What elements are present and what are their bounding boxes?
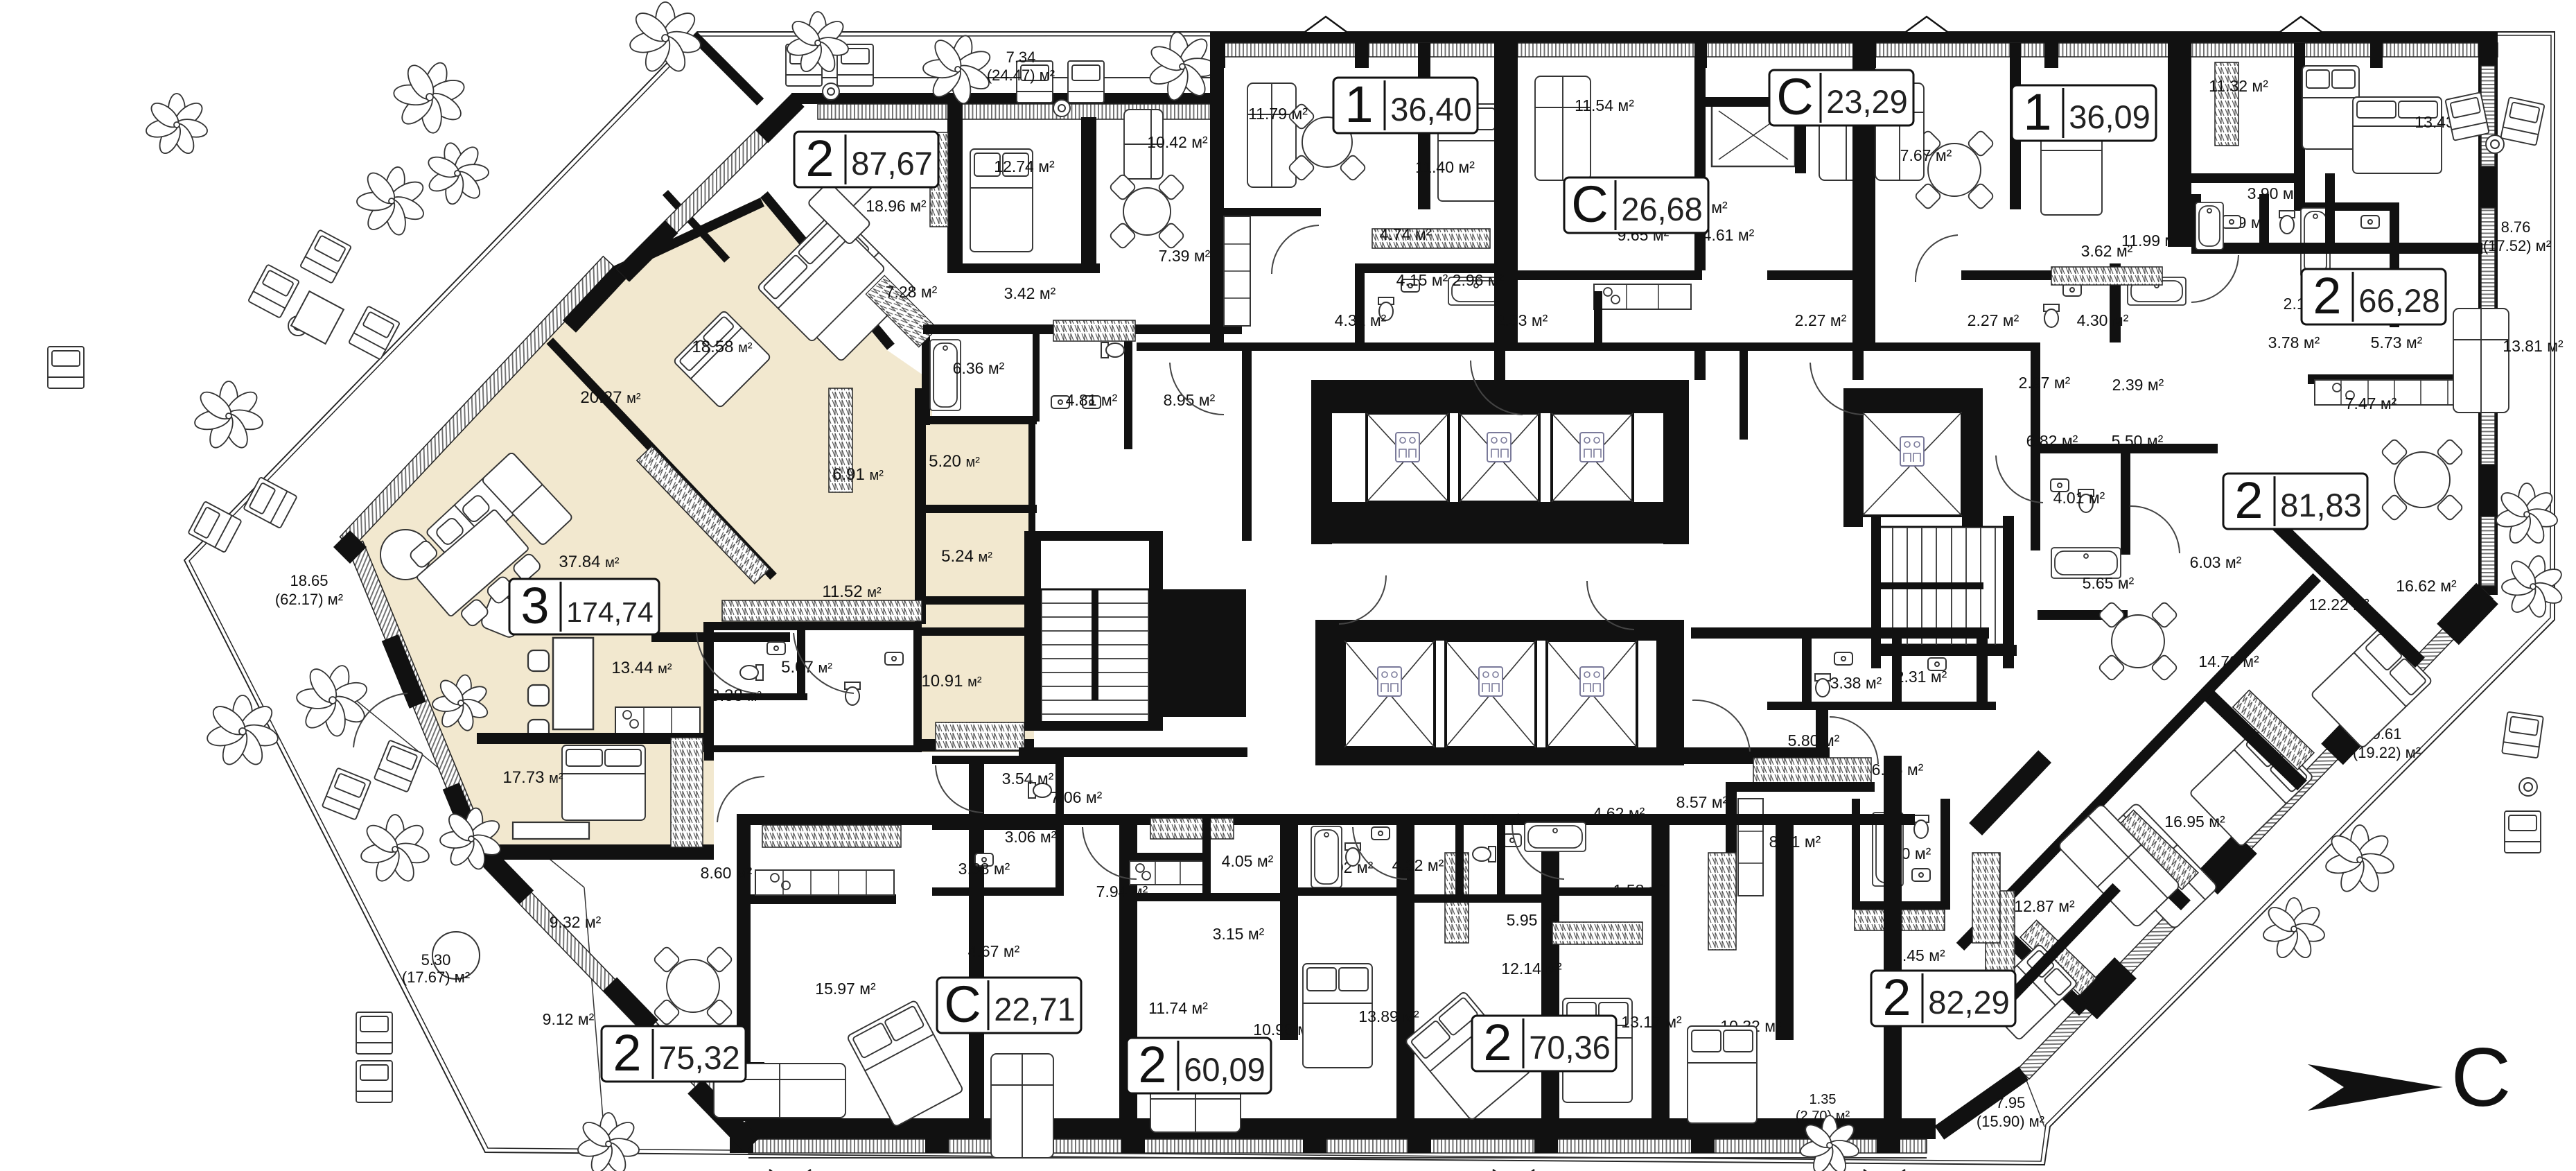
svg-text:4.74 м²: 4.74 м²	[1380, 225, 1432, 243]
svg-text:3.42 м²: 3.42 м²	[1004, 284, 1056, 302]
svg-text:7.06 м²: 7.06 м²	[1051, 788, 1103, 806]
svg-text:3.78 м²: 3.78 м²	[2268, 333, 2320, 352]
svg-text:13.81 м²: 13.81 м²	[2503, 337, 2564, 355]
svg-text:60,09: 60,09	[1184, 1051, 1265, 1088]
svg-text:3: 3	[520, 577, 549, 634]
svg-text:11.79 м²: 11.79 м²	[1248, 105, 1308, 123]
svg-text:11.32 м²: 11.32 м²	[2209, 77, 2268, 95]
svg-text:2: 2	[1882, 969, 1911, 1026]
svg-text:2.27 м²: 2.27 м²	[1795, 311, 1847, 329]
svg-text:6.03 м²: 6.03 м²	[2190, 553, 2242, 571]
svg-text:4.81 м²: 4.81 м²	[1066, 391, 1118, 409]
svg-text:1: 1	[2023, 83, 2051, 141]
svg-text:5.73 м²: 5.73 м²	[2371, 333, 2423, 352]
svg-text:12.87 м²: 12.87 м²	[2014, 897, 2075, 915]
svg-text:2: 2	[613, 1024, 641, 1082]
svg-text:5.24 м²: 5.24 м²	[941, 547, 992, 566]
svg-text:C: C	[1571, 175, 1608, 233]
svg-text:2: 2	[1138, 1036, 1166, 1093]
svg-text:13.17 м²: 13.17 м²	[1621, 1013, 1682, 1031]
svg-text:66,28: 66,28	[2358, 282, 2440, 319]
svg-text:3.38 м²: 3.38 м²	[710, 686, 762, 705]
svg-text:3.15 м²: 3.15 м²	[1213, 925, 1265, 943]
svg-text:(17.52) м²: (17.52) м²	[2483, 237, 2551, 254]
svg-text:8.57 м²: 8.57 м²	[1676, 793, 1728, 811]
svg-text:7.34: 7.34	[1006, 49, 1036, 66]
svg-text:7.39 м²: 7.39 м²	[1159, 247, 1211, 265]
svg-text:10.42 м²: 10.42 м²	[1147, 133, 1208, 151]
svg-text:82,29: 82,29	[1928, 984, 2010, 1021]
svg-text:(62.17) м²: (62.17) м²	[275, 591, 343, 608]
svg-text:3.06 м²: 3.06 м²	[1005, 828, 1057, 846]
svg-text:(2.70) м²: (2.70) м²	[1796, 1109, 1850, 1124]
svg-text:C: C	[1776, 68, 1813, 125]
svg-text:12.74 м²: 12.74 м²	[994, 157, 1055, 175]
svg-text:6.82 м²: 6.82 м²	[2026, 432, 2078, 450]
svg-text:4.01 м²: 4.01 м²	[2053, 489, 2105, 507]
svg-text:37.84 м²: 37.84 м²	[559, 553, 619, 571]
svg-text:5.50 м²: 5.50 м²	[2112, 432, 2164, 450]
svg-text:11.52 м²: 11.52 м²	[822, 582, 882, 601]
svg-text:3.38 м²: 3.38 м²	[1830, 674, 1882, 692]
svg-text:(15.90) м²: (15.90) м²	[1977, 1113, 2044, 1130]
svg-text:5.95 м²: 5.95 м²	[1507, 911, 1559, 929]
svg-text:70,36: 70,36	[1529, 1029, 1611, 1066]
svg-text:1.35: 1.35	[1810, 1092, 1837, 1107]
svg-text:15.97 м²: 15.97 м²	[815, 980, 876, 998]
svg-text:87,67: 87,67	[851, 145, 933, 182]
svg-text:5.20 м²: 5.20 м²	[929, 452, 980, 471]
svg-text:75,32: 75,32	[658, 1039, 740, 1076]
svg-text:9.32 м²: 9.32 м²	[550, 913, 602, 931]
svg-text:4.32 м²: 4.32 м²	[1335, 311, 1387, 329]
svg-text:7.47 м²: 7.47 м²	[2345, 394, 2397, 413]
svg-text:36,40: 36,40	[1390, 91, 1472, 128]
svg-text:3.38 м²: 3.38 м²	[958, 860, 1010, 878]
svg-text:18.58 м²: 18.58 м²	[692, 338, 752, 356]
svg-text:4.32 м²: 4.32 м²	[1392, 856, 1444, 874]
svg-text:4.67 м²: 4.67 м²	[968, 942, 1020, 960]
svg-text:2.27 м²: 2.27 м²	[1968, 311, 2019, 329]
svg-text:6.36 м²: 6.36 м²	[953, 359, 1005, 377]
svg-text:4.15 м²: 4.15 м²	[1396, 271, 1448, 289]
svg-text:4.62 м²: 4.62 м²	[1593, 804, 1645, 822]
svg-text:17.73 м²: 17.73 м²	[502, 768, 563, 787]
svg-text:18.65: 18.65	[290, 572, 328, 589]
svg-text:8.60 м²: 8.60 м²	[701, 864, 753, 882]
svg-text:16.95 м²: 16.95 м²	[2164, 813, 2225, 831]
svg-text:4.05 м²: 4.05 м²	[1222, 852, 1274, 870]
svg-text:23,29: 23,29	[1826, 83, 1908, 120]
svg-text:11.40 м²: 11.40 м²	[1415, 158, 1475, 176]
svg-text:7.28 м²: 7.28 м²	[886, 283, 938, 301]
svg-text:4.61 м²: 4.61 м²	[1703, 226, 1755, 244]
svg-text:18.96 м²: 18.96 м²	[866, 197, 927, 215]
svg-text:36,09: 36,09	[2069, 98, 2150, 135]
svg-text:7.95: 7.95	[1996, 1094, 2026, 1111]
svg-text:81,83: 81,83	[2280, 487, 2362, 523]
svg-text:16.62 м²: 16.62 м²	[2396, 577, 2457, 595]
svg-text:5.65 м²: 5.65 м²	[2083, 574, 2135, 592]
svg-text:2: 2	[1483, 1014, 1512, 1071]
svg-text:1: 1	[1344, 76, 1373, 133]
svg-text:5.80 м²: 5.80 м²	[1788, 731, 1840, 749]
svg-text:2.39 м²: 2.39 м²	[2112, 376, 2164, 394]
svg-text:C: C	[944, 975, 981, 1033]
svg-text:2: 2	[805, 130, 834, 187]
svg-text:3.90 м²: 3.90 м²	[2248, 184, 2299, 202]
svg-text:5.30: 5.30	[421, 951, 451, 969]
svg-text:2.53 м²: 2.53 м²	[1496, 311, 1548, 329]
svg-text:8.95 м²: 8.95 м²	[1164, 391, 1216, 409]
svg-text:26,68: 26,68	[1621, 191, 1703, 227]
svg-text:3.62 м²: 3.62 м²	[2081, 242, 2133, 260]
svg-text:2: 2	[2313, 267, 2341, 324]
svg-text:2.97 м²: 2.97 м²	[2019, 374, 2071, 392]
svg-text:(17.67) м²: (17.67) м²	[402, 969, 470, 986]
svg-text:9.12 м²: 9.12 м²	[543, 1010, 595, 1028]
svg-text:10.91 м²: 10.91 м²	[921, 672, 981, 691]
svg-text:11.54 м²: 11.54 м²	[1575, 96, 1634, 114]
svg-text:3.54 м²: 3.54 м²	[1002, 770, 1054, 788]
svg-text:2: 2	[2234, 471, 2263, 529]
svg-text:11.74 м²: 11.74 м²	[1148, 999, 1208, 1017]
svg-text:3.95 м²: 3.95 м²	[1469, 810, 1521, 829]
svg-text:(24.47) м²: (24.47) м²	[987, 67, 1055, 84]
svg-text:8.76: 8.76	[2501, 218, 2531, 236]
svg-text:C: C	[2451, 1031, 2512, 1124]
svg-text:13.89 м²: 13.89 м²	[1358, 1007, 1419, 1025]
svg-text:7.67 м²: 7.67 м²	[1900, 146, 1952, 164]
svg-text:2.96 м²: 2.96 м²	[1453, 271, 1505, 289]
svg-text:13.44 м²: 13.44 м²	[611, 659, 672, 677]
svg-text:174,74: 174,74	[566, 596, 653, 628]
svg-text:6.91 м²: 6.91 м²	[832, 465, 884, 484]
svg-text:22,71: 22,71	[994, 991, 1076, 1027]
svg-text:4.30 м²: 4.30 м²	[2077, 311, 2129, 329]
svg-text:20.27 м²: 20.27 м²	[580, 388, 640, 407]
svg-text:12.14 м²: 12.14 м²	[1501, 960, 1562, 978]
